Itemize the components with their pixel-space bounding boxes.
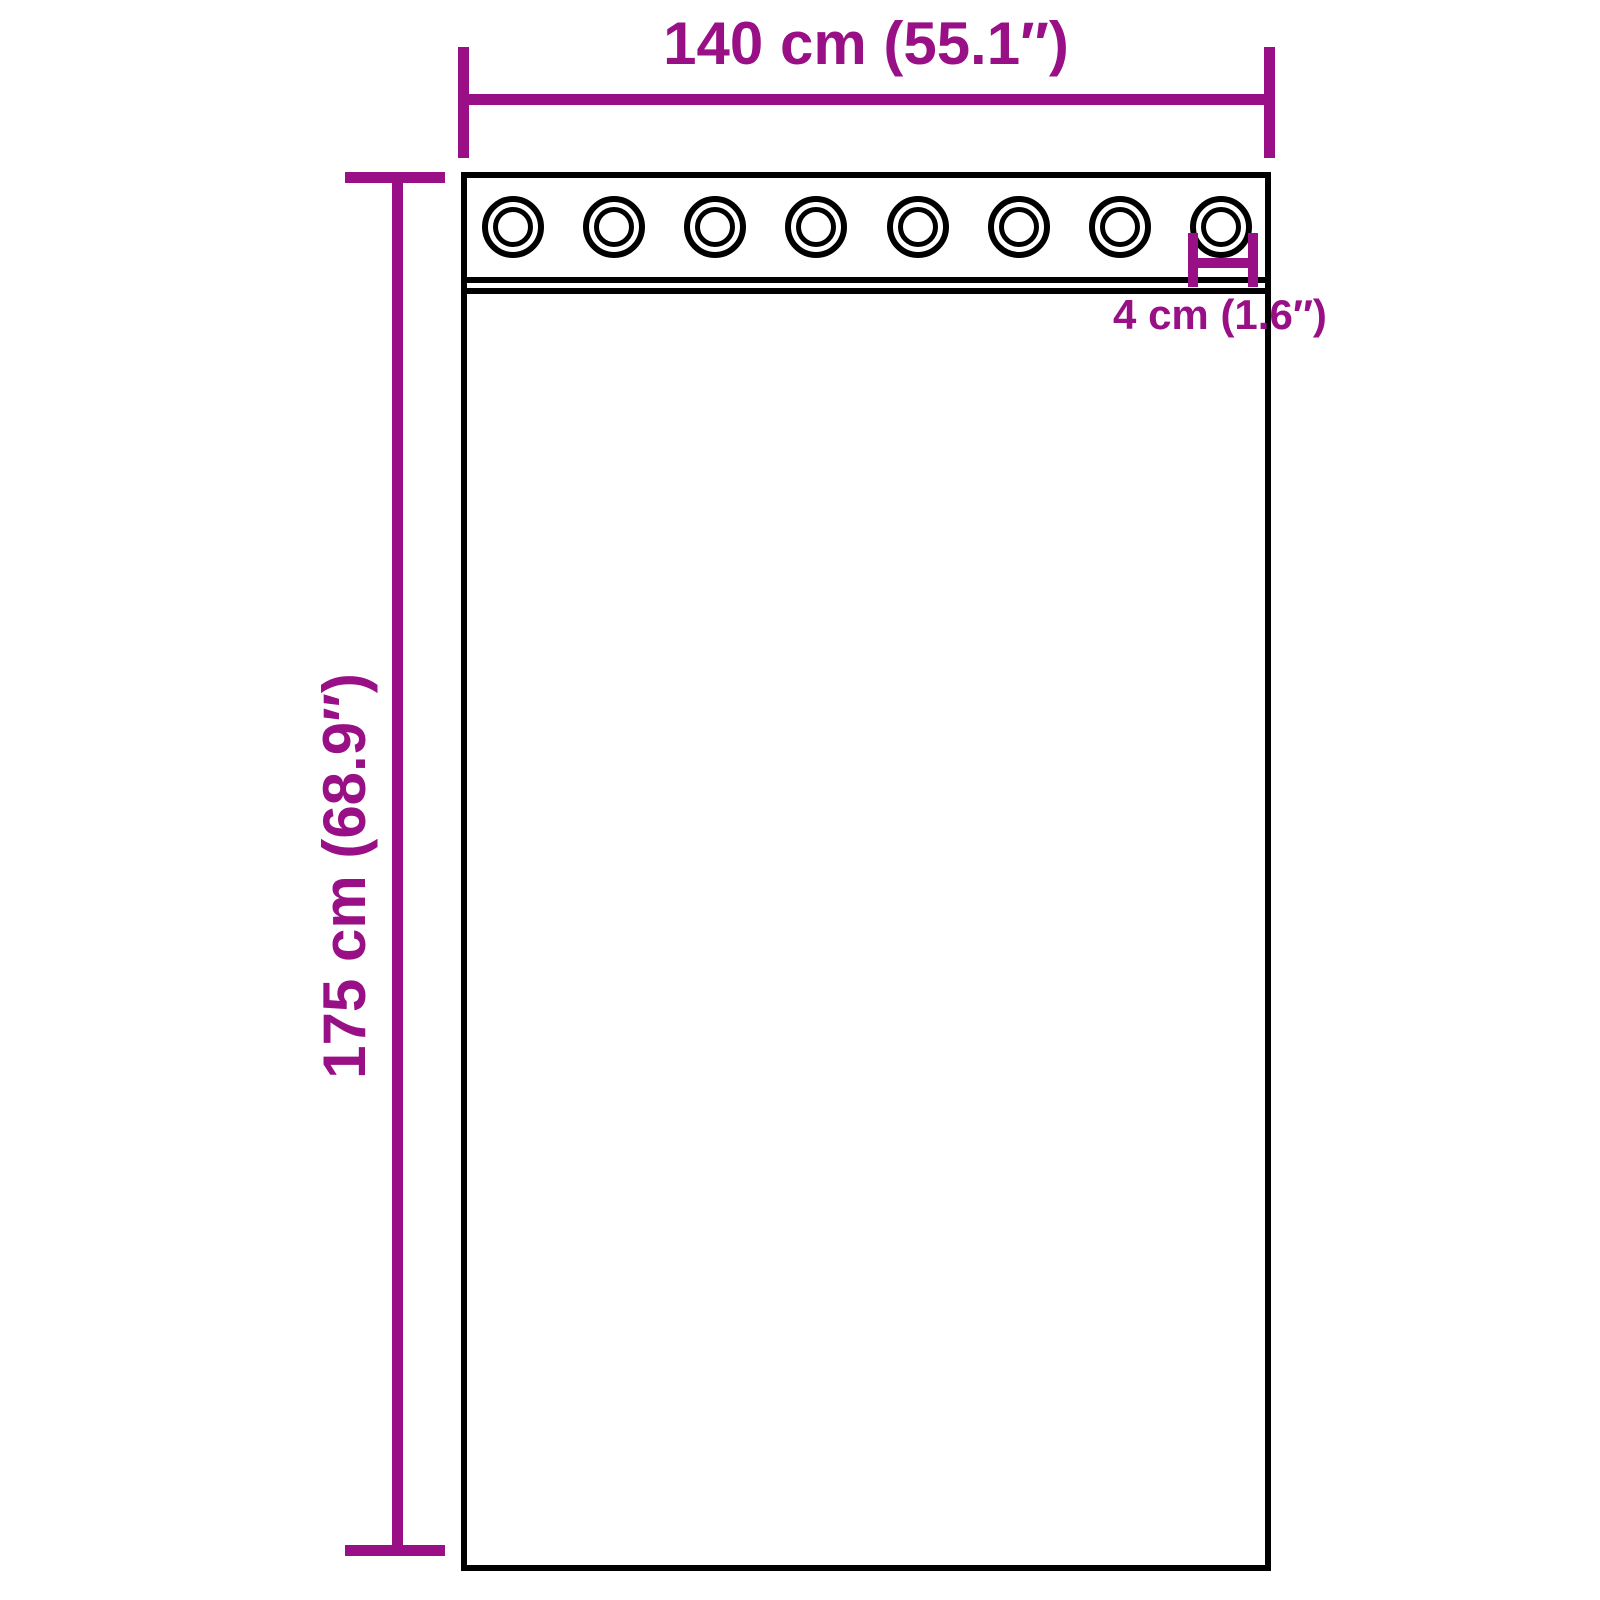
- grommet-icon: [1089, 196, 1151, 258]
- curtain-panel-outline: [461, 172, 1271, 1571]
- grommet-icon: [785, 196, 847, 258]
- width-dimension-line: [458, 94, 1275, 105]
- grommet-dimension-right-tick: [1248, 233, 1258, 287]
- grommet-hole: [999, 207, 1039, 247]
- grommet-hole: [1201, 207, 1241, 247]
- height-dimension-label: 175 cm (68.9″): [310, 576, 380, 1176]
- height-dimension-bottom-tick: [345, 1545, 445, 1556]
- grommet-row: [482, 196, 1252, 258]
- grommet-dimension-label: 4 cm (1.6″): [1000, 290, 1440, 340]
- grommet-icon: [684, 196, 746, 258]
- grommet-hole: [898, 207, 938, 247]
- grommet-icon: [583, 196, 645, 258]
- width-dimension-label: 140 cm (55.1″): [461, 8, 1271, 80]
- grommet-icon: [988, 196, 1050, 258]
- grommet-hole: [594, 207, 634, 247]
- grommet-icon: [482, 196, 544, 258]
- grommet-icon: [887, 196, 949, 258]
- grommet-hole: [493, 207, 533, 247]
- grommet-hole: [695, 207, 735, 247]
- grommet-hole: [1100, 207, 1140, 247]
- grommet-icon: [1190, 196, 1252, 258]
- header-seam-line-upper: [467, 277, 1265, 283]
- grommet-hole: [796, 207, 836, 247]
- height-dimension-line: [392, 177, 403, 1551]
- dimension-diagram: 140 cm (55.1″) 175 cm (68.9″) 4 cm (1.6″…: [0, 0, 1600, 1600]
